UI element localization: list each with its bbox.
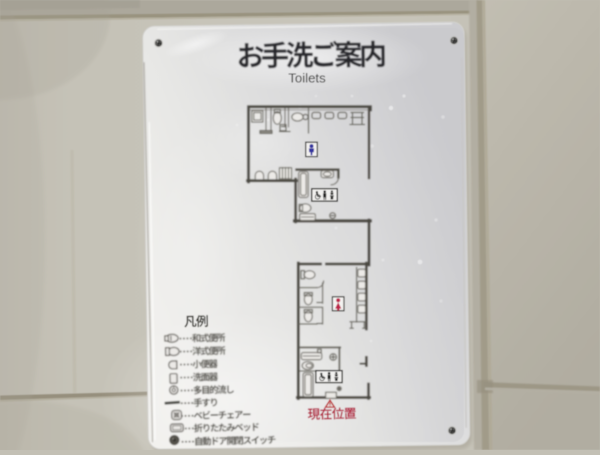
- svg-text:Toilets: Toilets: [288, 71, 326, 86]
